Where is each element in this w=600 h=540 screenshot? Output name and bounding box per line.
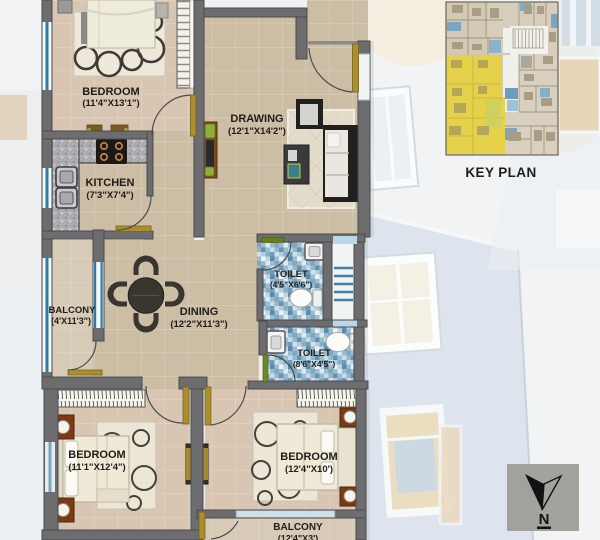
svg-text:(8'6"X4'5"): (8'6"X4'5"): [293, 359, 336, 369]
svg-text:(7'3"X7'4"): (7'3"X7'4"): [86, 190, 133, 201]
svg-text:(12'4"X10'): (12'4"X10'): [285, 464, 333, 475]
svg-text:(4'5"X6'6"): (4'5"X6'6"): [270, 280, 313, 290]
svg-text:KEY PLAN: KEY PLAN: [465, 165, 536, 180]
svg-text:BEDROOM: BEDROOM: [280, 451, 337, 463]
svg-text:TOILET: TOILET: [274, 269, 308, 280]
svg-text:(12'1"X14'2"): (12'1"X14'2"): [228, 126, 286, 137]
svg-text:KITCHEN: KITCHEN: [86, 177, 135, 189]
svg-text:TOILET: TOILET: [297, 348, 331, 359]
svg-text:N: N: [539, 511, 550, 528]
svg-text:(11'1"X12'4"): (11'1"X12'4"): [68, 462, 125, 473]
svg-text:DRAWING: DRAWING: [230, 113, 283, 125]
svg-text:BEDROOM: BEDROOM: [82, 86, 139, 98]
svg-text:(11'4"X13'1"): (11'4"X13'1"): [82, 98, 139, 109]
svg-text:BALCONY: BALCONY: [49, 305, 97, 316]
svg-text:(12'2"X11'3"): (12'2"X11'3"): [170, 319, 227, 330]
svg-text:(12'4"X3'): (12'4"X3'): [278, 534, 319, 540]
svg-text:(4'X11'3"): (4'X11'3"): [51, 316, 91, 326]
svg-text:BEDROOM: BEDROOM: [68, 449, 125, 461]
svg-text:DINING: DINING: [180, 306, 219, 318]
svg-text:BALCONY: BALCONY: [273, 522, 323, 533]
